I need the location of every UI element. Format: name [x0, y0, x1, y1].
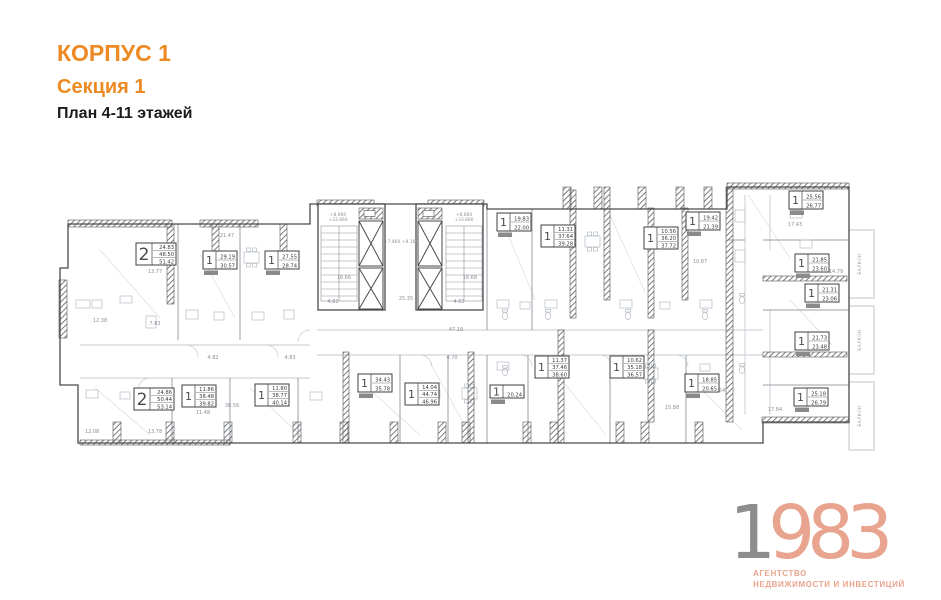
- apartment-area: 39.82: [199, 402, 214, 408]
- apartment-area: 38.60: [552, 373, 567, 379]
- dimension-label: 15.88: [665, 405, 679, 411]
- apartment-area: 10.56: [661, 229, 676, 235]
- dimension-label: 13.77: [148, 269, 162, 275]
- apartment-tag-chip: [687, 232, 701, 237]
- apartment-area: 11.31: [558, 227, 573, 233]
- apartment-label: 125.1826.79: [794, 388, 828, 412]
- apartment-tag-chip: [796, 352, 810, 357]
- dimension-label: 21.47: [220, 233, 234, 239]
- unit-dividers: [172, 209, 849, 443]
- apartment-area: 21.85: [812, 258, 827, 264]
- apartment-tag-chip: [806, 304, 820, 309]
- apartment-area: 26.79: [811, 401, 826, 407]
- apartment-area: 35.78: [375, 387, 390, 393]
- apartment-area: 53.14: [157, 405, 173, 411]
- apartment-rooms: 1: [808, 287, 815, 300]
- apartment-area: 25.18: [811, 392, 826, 398]
- apartment-area: 50.44: [157, 397, 173, 403]
- dimension-label: 11.48: [196, 410, 210, 416]
- dimension-label: 4.70: [446, 355, 457, 361]
- apartment-area: 21.73: [812, 336, 827, 342]
- dimension-label: 14.79: [829, 269, 843, 275]
- apartment-rooms: 1: [206, 254, 213, 267]
- apartment-label: 114.0444.7446.96: [405, 383, 439, 406]
- apartment-area: 35.18: [627, 365, 642, 371]
- balcony-label: БАЛКОН: [857, 329, 862, 350]
- apartment-rooms: 1: [500, 216, 507, 229]
- apartment-label: 110.5636.2037.72: [644, 227, 678, 250]
- apartment-area: 20.24: [507, 393, 523, 399]
- apartment-area: 21.31: [822, 288, 837, 294]
- apartment-area: 25.56: [806, 195, 821, 201]
- apartment-rooms: 1: [408, 388, 415, 401]
- apartment-rooms: 1: [798, 257, 805, 270]
- apartment-area: 40.14: [272, 401, 288, 407]
- balcony-label: БАЛКОН: [857, 405, 862, 426]
- dimension-label: 7.83: [149, 321, 160, 327]
- apartment-rooms: 2: [137, 390, 148, 410]
- apartment-rooms: 1: [613, 361, 620, 374]
- apartment-area: 29.19: [220, 255, 235, 261]
- apartment-label: 127.5528.74: [265, 251, 299, 275]
- apartment-area: 48.50: [159, 252, 174, 258]
- apartment-area: 36.20: [661, 236, 676, 242]
- apartment-area: 51.42: [159, 260, 174, 266]
- apartment-label: 224.8348.5051.42: [136, 243, 176, 266]
- apartment-area: 38.48: [199, 394, 214, 400]
- apartment-area: 21.39: [703, 225, 718, 231]
- logo-1983: 1983: [729, 502, 919, 565]
- dimension-label: 10.87: [693, 259, 707, 265]
- apartment-area: 34.43: [375, 378, 390, 384]
- apartment-area: 28.74: [282, 264, 298, 270]
- apartment-label: 119.8322.00: [497, 213, 531, 237]
- dimension-label: 13.78: [148, 429, 162, 435]
- apartment-label: 111.3737.4638.60: [535, 356, 569, 379]
- apartment-area: 46.96: [422, 400, 437, 406]
- apartment-area: 24.83: [159, 245, 174, 251]
- apartment-area: 11.37: [552, 358, 567, 364]
- apartment-rooms: 1: [647, 232, 654, 245]
- apartment-area: 44.74: [422, 392, 438, 398]
- apartment-area: 19.42: [703, 216, 718, 222]
- apartment-label: 121.8523.60: [795, 254, 829, 278]
- apartment-tag-chip: [795, 408, 809, 413]
- apartment-area: 37.46: [552, 365, 567, 371]
- dimension-label: +9.160: [402, 239, 418, 245]
- apartment-area: 23.48: [812, 345, 827, 351]
- apartment-area: 18.85: [702, 378, 717, 384]
- door-arcs: [138, 330, 688, 390]
- apartment-rooms: 1: [268, 254, 275, 267]
- apartment-label: 119.4221.39: [686, 212, 720, 236]
- balcony-label: БАЛКОН: [857, 253, 862, 274]
- apartment-rooms: 1: [688, 377, 695, 390]
- apartment-tag-chip: [686, 394, 700, 399]
- apartment-rooms: 1: [797, 391, 804, 404]
- apartment-area: 37.64: [558, 234, 574, 240]
- dimension-label: 4.82: [207, 355, 218, 361]
- dimension-label: 4.83: [284, 355, 295, 361]
- apartment-label: 224.8650.4453.14: [134, 388, 174, 411]
- apartment-rooms: 1: [798, 335, 805, 348]
- apartment-label: 120.24: [490, 385, 524, 404]
- apartment-tag-chip: [498, 233, 512, 238]
- apartment-rooms: 1: [689, 215, 696, 228]
- apartment-rooms: 1: [185, 390, 192, 403]
- apartment-label: 118.8520.65: [685, 374, 719, 398]
- dimension-label: 16.66: [337, 275, 351, 281]
- apartment-area: 23.60: [812, 267, 827, 273]
- apartment-rooms: 1: [538, 361, 545, 374]
- dimension-label: +33.660: [454, 217, 473, 223]
- apartment-rooms: 1: [792, 194, 799, 207]
- dimension-label: 4.62: [327, 299, 338, 305]
- apartment-rooms: 1: [361, 377, 368, 390]
- dimension-label: 4.62: [453, 299, 464, 305]
- dimension-label: 17.84: [768, 407, 782, 413]
- dimension-label: 47.19: [449, 327, 463, 333]
- dimension-label: 17.43: [788, 222, 802, 228]
- apartment-label: 125.5626.77: [789, 191, 823, 215]
- apartment-rooms: 2: [139, 245, 150, 265]
- apartment-area: 14.04: [422, 385, 438, 391]
- dimension-label: 38.56: [225, 403, 239, 409]
- dimension-label: 12.08: [85, 429, 99, 435]
- apartment-tag-chip: [266, 271, 280, 276]
- dimension-label: 12.38: [93, 318, 107, 324]
- agency-logo: 1983 АГЕНТСТВО НЕДВИЖИМОСТИ И ИНВЕСТИЦИЙ: [729, 502, 919, 590]
- apartment-label: 121.3123.06: [805, 284, 839, 308]
- apartment-label: 111.3137.6439.28: [541, 225, 575, 248]
- apartment-area: 38.77: [272, 393, 287, 399]
- apartment-rooms: 1: [493, 386, 500, 399]
- apartment-rooms: 1: [544, 230, 551, 243]
- dimension-label: 25.35: [399, 296, 413, 302]
- apartment-area: 27.55: [282, 255, 297, 261]
- apartment-label: 110.6235.1836.57: [610, 356, 644, 379]
- apartment-tag-chip: [359, 394, 373, 399]
- apartment-area: 22.00: [514, 226, 529, 232]
- apartment-tag-chip: [491, 400, 505, 405]
- apartment-area: 26.77: [806, 204, 821, 210]
- dimension-label: 12.64: [711, 388, 725, 394]
- apartment-tag-chip: [796, 274, 810, 279]
- dimension-label: +33.660: [328, 217, 347, 223]
- apartment-tag-chip: [790, 211, 804, 216]
- apartment-label: 111.8638.4839.82: [182, 385, 216, 408]
- dimension-label: +7.460: [384, 239, 400, 245]
- apartment-area: 10.62: [627, 358, 642, 364]
- apartment-area: 37.72: [661, 244, 676, 250]
- apartment-area: 11.86: [199, 387, 214, 393]
- apartment-area: 36.57: [627, 373, 642, 379]
- apartment-area: 11.80: [272, 386, 287, 392]
- apartment-area: 23.06: [822, 297, 837, 303]
- apartment-area: 24.86: [157, 390, 172, 396]
- apartment-label: 111.8038.7740.14: [255, 384, 289, 407]
- apartment-area: 39.28: [558, 242, 573, 248]
- apartment-area: 30.57: [220, 264, 235, 270]
- apartment-label: 129.1930.57: [203, 251, 237, 275]
- apartment-area: 19.83: [514, 217, 529, 223]
- apartment-rooms: 1: [258, 389, 265, 402]
- dimension-label: 16.68: [463, 275, 477, 281]
- apartment-tag-chip: [204, 271, 218, 276]
